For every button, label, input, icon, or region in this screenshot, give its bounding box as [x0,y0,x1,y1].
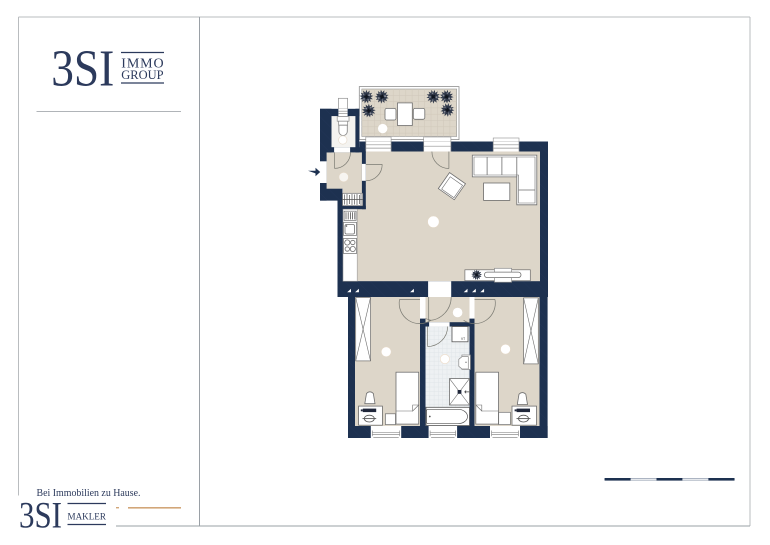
svg-text:3SI: 3SI [51,40,114,97]
svg-text:GROUP: GROUP [121,68,163,82]
svg-text:VT: VT [461,337,465,341]
svg-text:MAKLER: MAKLER [68,513,107,523]
svg-text:3SI: 3SI [19,496,62,537]
